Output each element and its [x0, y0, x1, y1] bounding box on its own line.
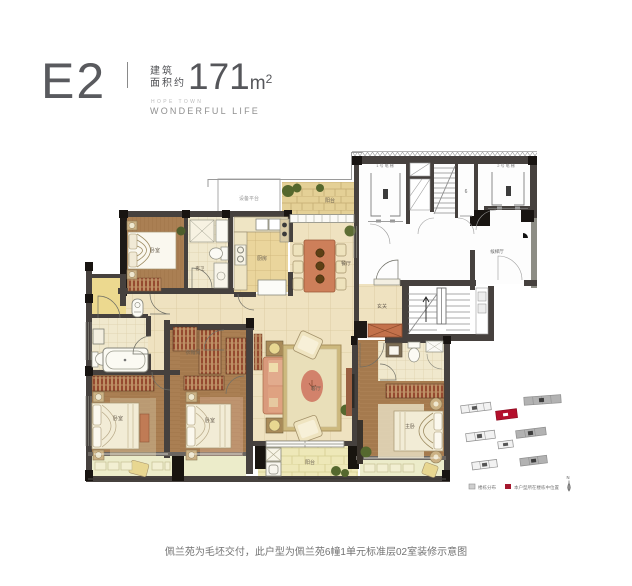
- svg-text:玄关: 玄关: [377, 303, 387, 310]
- svg-text:衣帽间: 衣帽间: [185, 349, 200, 356]
- svg-text:客卫: 客卫: [196, 265, 205, 272]
- svg-text:卧室: 卧室: [205, 417, 215, 424]
- svg-text:候梯厅: 候梯厅: [490, 248, 504, 255]
- svg-text:1 号 电 梯: 1 号 电 梯: [376, 162, 394, 168]
- svg-text:卧室: 卧室: [150, 247, 160, 254]
- svg-text:N: N: [567, 475, 570, 480]
- svg-text:楼栋分布: 楼栋分布: [478, 484, 496, 491]
- svg-text:设备平台: 设备平台: [239, 195, 259, 202]
- svg-text:本户型所在楼栋中位置: 本户型所在楼栋中位置: [514, 484, 559, 491]
- svg-text:厨房: 厨房: [257, 255, 267, 262]
- svg-text:主卧: 主卧: [405, 423, 415, 430]
- svg-text:2 号 电 梯: 2 号 电 梯: [497, 162, 515, 168]
- svg-text:6: 6: [465, 189, 468, 195]
- svg-text:阳台: 阳台: [325, 197, 335, 204]
- svg-text:卧室: 卧室: [113, 415, 123, 422]
- svg-text:餐厅: 餐厅: [341, 260, 351, 267]
- svg-text:阳台: 阳台: [305, 459, 315, 466]
- svg-text:客厅: 客厅: [311, 385, 321, 392]
